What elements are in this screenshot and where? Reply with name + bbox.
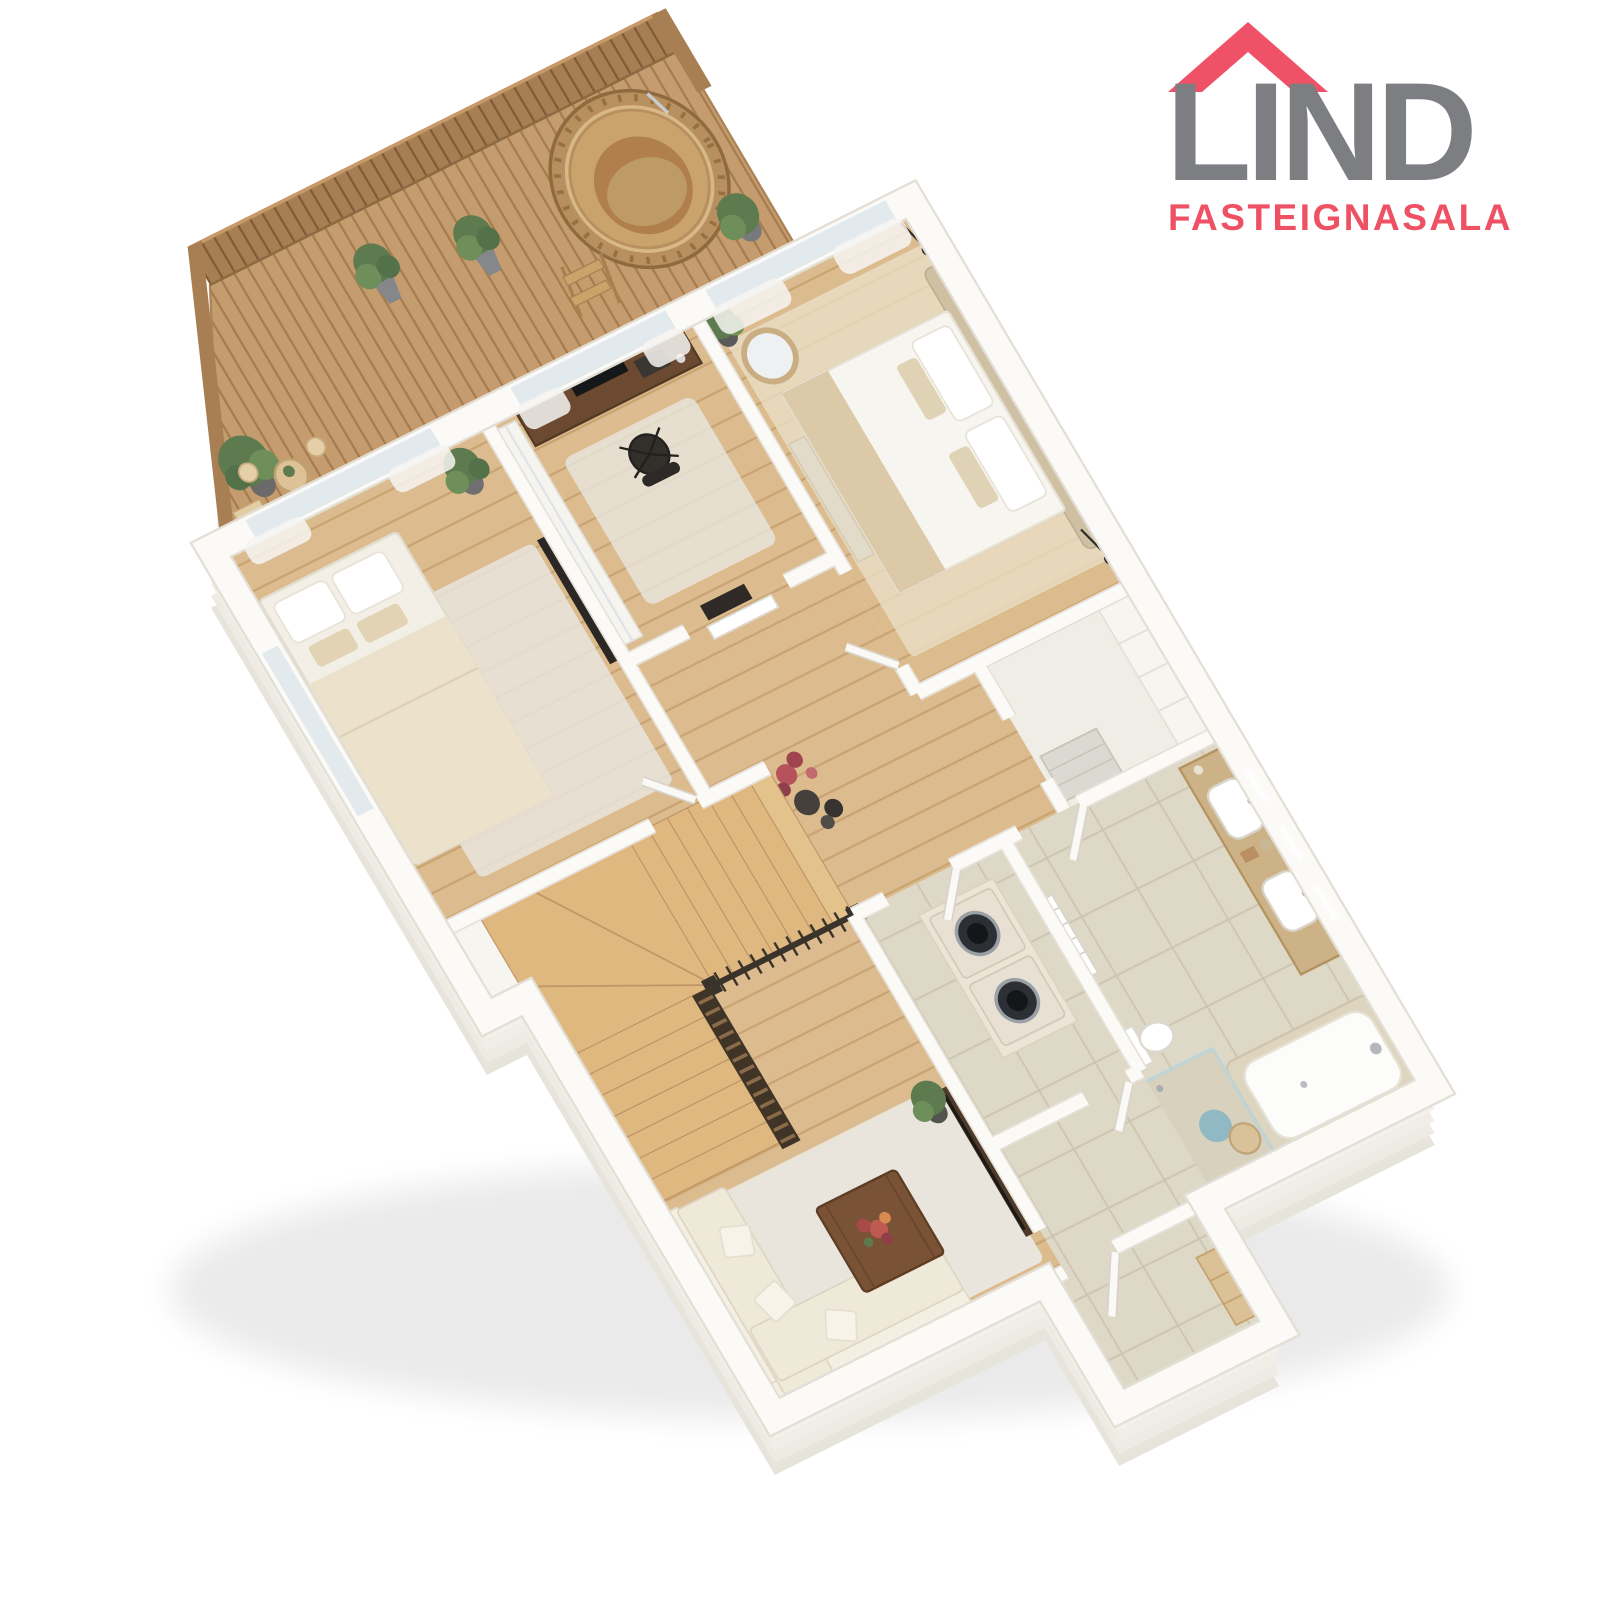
real-estate-floorplan-page: LIND FASTEIGNASALA <box>0 0 1600 1600</box>
logo-subtitle: FASTEIGNASALA <box>1168 197 1513 238</box>
floor-plan-render: LIND FASTEIGNASALA <box>0 0 1600 1600</box>
logo-title: LIND <box>1166 53 1473 210</box>
logo: LIND FASTEIGNASALA <box>1166 22 1513 238</box>
